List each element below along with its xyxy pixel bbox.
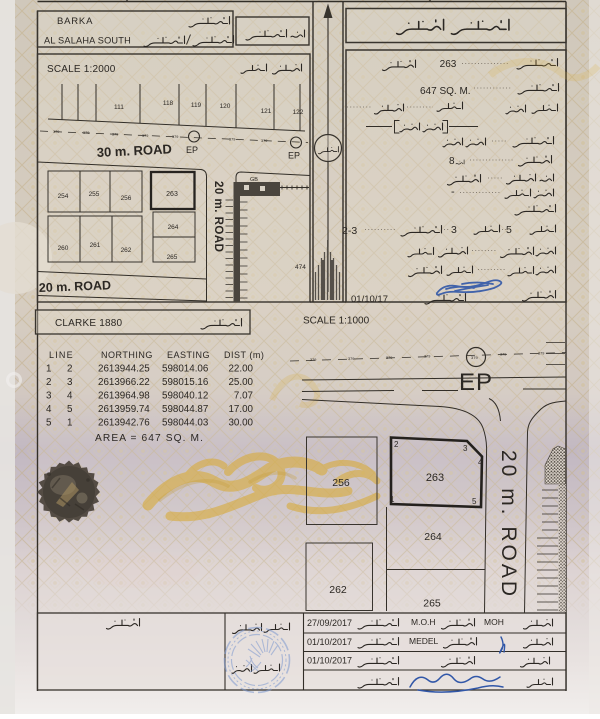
svg-text:EASTING: EASTING (167, 350, 210, 360)
svg-text:3: 3 (463, 444, 468, 453)
svg-text:3: 3 (451, 224, 457, 236)
svg-text:263: 263 (166, 191, 178, 198)
svg-text:647 SQ. M.: 647 SQ. M. (420, 86, 471, 97)
svg-text:122: 122 (293, 109, 304, 116)
svg-text:EP: EP (288, 151, 300, 161)
svg-text:263: 263 (440, 59, 457, 70)
svg-text:2: 2 (46, 377, 51, 388)
svg-text:8: 8 (449, 156, 455, 167)
svg-text:379: 379 (83, 131, 89, 135)
svg-text:5: 5 (472, 497, 477, 506)
svg-text:263: 263 (426, 472, 444, 484)
svg-text:2613959.74: 2613959.74 (98, 404, 150, 415)
svg-text:256: 256 (332, 477, 350, 489)
svg-text:1: 1 (46, 364, 51, 375)
svg-text:264: 264 (424, 531, 442, 543)
svg-text:MOH: MOH (484, 617, 504, 627)
svg-text:255: 255 (89, 191, 100, 198)
svg-text:379: 379 (310, 358, 316, 362)
svg-text:27/09/2017: 27/09/2017 (307, 618, 352, 628)
svg-text:M.O.H: M.O.H (411, 617, 436, 627)
svg-text:LINE: LINE (49, 350, 74, 360)
svg-text:598044.87: 598044.87 (162, 404, 208, 415)
svg-text:3: 3 (46, 391, 52, 402)
svg-text:2: 2 (67, 364, 72, 375)
svg-text:20 m. ROAD: 20 m. ROAD (212, 181, 224, 252)
svg-text:2613966.22: 2613966.22 (98, 377, 150, 388)
svg-text:AL SALAHA SOUTH: AL SALAHA SOUTH (44, 36, 131, 46)
svg-text:111: 111 (114, 104, 124, 111)
svg-text:379: 379 (261, 139, 267, 143)
svg-text:5: 5 (506, 224, 512, 236)
svg-text:265: 265 (423, 598, 441, 610)
svg-text:379: 379 (142, 134, 148, 138)
svg-text:2: 2 (394, 440, 399, 449)
svg-text:3: 3 (67, 377, 73, 388)
svg-text:265: 265 (167, 254, 178, 261)
svg-text:379: 379 (386, 356, 392, 360)
svg-text:CLARKE 1880: CLARKE 1880 (55, 318, 122, 329)
svg-text:7.07: 7.07 (234, 391, 253, 402)
svg-text:MEDEL: MEDEL (409, 636, 439, 646)
svg-text:2613964.98: 2613964.98 (98, 391, 150, 402)
svg-text:01/10/2017: 01/10/2017 (307, 656, 352, 666)
svg-text:598014.06: 598014.06 (162, 364, 209, 375)
svg-text:379: 379 (112, 133, 118, 137)
svg-text:264: 264 (168, 224, 179, 231)
svg-text:379: 379 (538, 352, 544, 356)
svg-text:AREA = 647 SQ. M.: AREA = 647 SQ. M. (95, 433, 204, 444)
svg-text:379: 379 (424, 355, 430, 359)
svg-text:1: 1 (390, 495, 395, 504)
svg-text:-: - (451, 186, 455, 198)
svg-text:5: 5 (67, 404, 73, 415)
svg-text:598015.16: 598015.16 (162, 377, 209, 388)
svg-text:262: 262 (329, 584, 347, 596)
svg-text:1: 1 (67, 418, 72, 429)
svg-text:598044.03: 598044.03 (162, 418, 209, 429)
svg-text:30.00: 30.00 (228, 418, 253, 429)
svg-text:260: 260 (58, 245, 69, 252)
svg-text:379: 379 (500, 353, 506, 357)
svg-text:261: 261 (90, 242, 101, 249)
svg-text:EP: EP (186, 145, 198, 155)
svg-text:4: 4 (478, 458, 483, 467)
svg-text:120: 120 (220, 103, 231, 110)
svg-text:119: 119 (191, 102, 202, 109)
svg-text:SCALE 1:2000: SCALE 1:2000 (47, 64, 116, 75)
svg-text:NORTHING: NORTHING (101, 350, 153, 360)
svg-text:SCALE 1:1000: SCALE 1:1000 (303, 316, 370, 327)
svg-text:01/10/2017: 01/10/2017 (307, 637, 352, 647)
svg-text:BARKA: BARKA (57, 16, 93, 27)
svg-text:EP: EP (459, 369, 493, 396)
svg-text:25.00: 25.00 (228, 377, 253, 388)
svg-text:4: 4 (67, 391, 73, 402)
svg-text:254: 254 (58, 193, 69, 200)
svg-text:2613942.76: 2613942.76 (98, 418, 150, 429)
svg-text:379: 379 (348, 357, 354, 361)
svg-text:01/10/17: 01/10/17 (351, 294, 388, 305)
svg-text:4: 4 (46, 404, 52, 415)
svg-text:17.00: 17.00 (228, 404, 253, 415)
svg-text:379: 379 (229, 138, 235, 142)
svg-text:118: 118 (163, 100, 174, 107)
svg-text:121: 121 (261, 108, 272, 115)
svg-text:598040.12: 598040.12 (162, 391, 208, 402)
svg-text:22.00: 22.00 (228, 364, 253, 375)
svg-text:474: 474 (295, 264, 306, 271)
svg-text:262: 262 (121, 247, 132, 254)
svg-text:256: 256 (121, 195, 132, 202)
svg-text:20 m. ROAD: 20 m. ROAD (497, 450, 520, 599)
svg-text:5: 5 (46, 418, 52, 429)
svg-text:379: 379 (471, 355, 478, 360)
svg-text:2613944.25: 2613944.25 (98, 364, 150, 375)
svg-text:2-3: 2-3 (342, 225, 357, 237)
svg-text:379: 379 (172, 135, 178, 139)
svg-text:379: 379 (53, 130, 59, 134)
svg-text:DIST (m): DIST (m) (224, 350, 264, 360)
svg-text:20 m. ROAD: 20 m. ROAD (39, 278, 112, 295)
